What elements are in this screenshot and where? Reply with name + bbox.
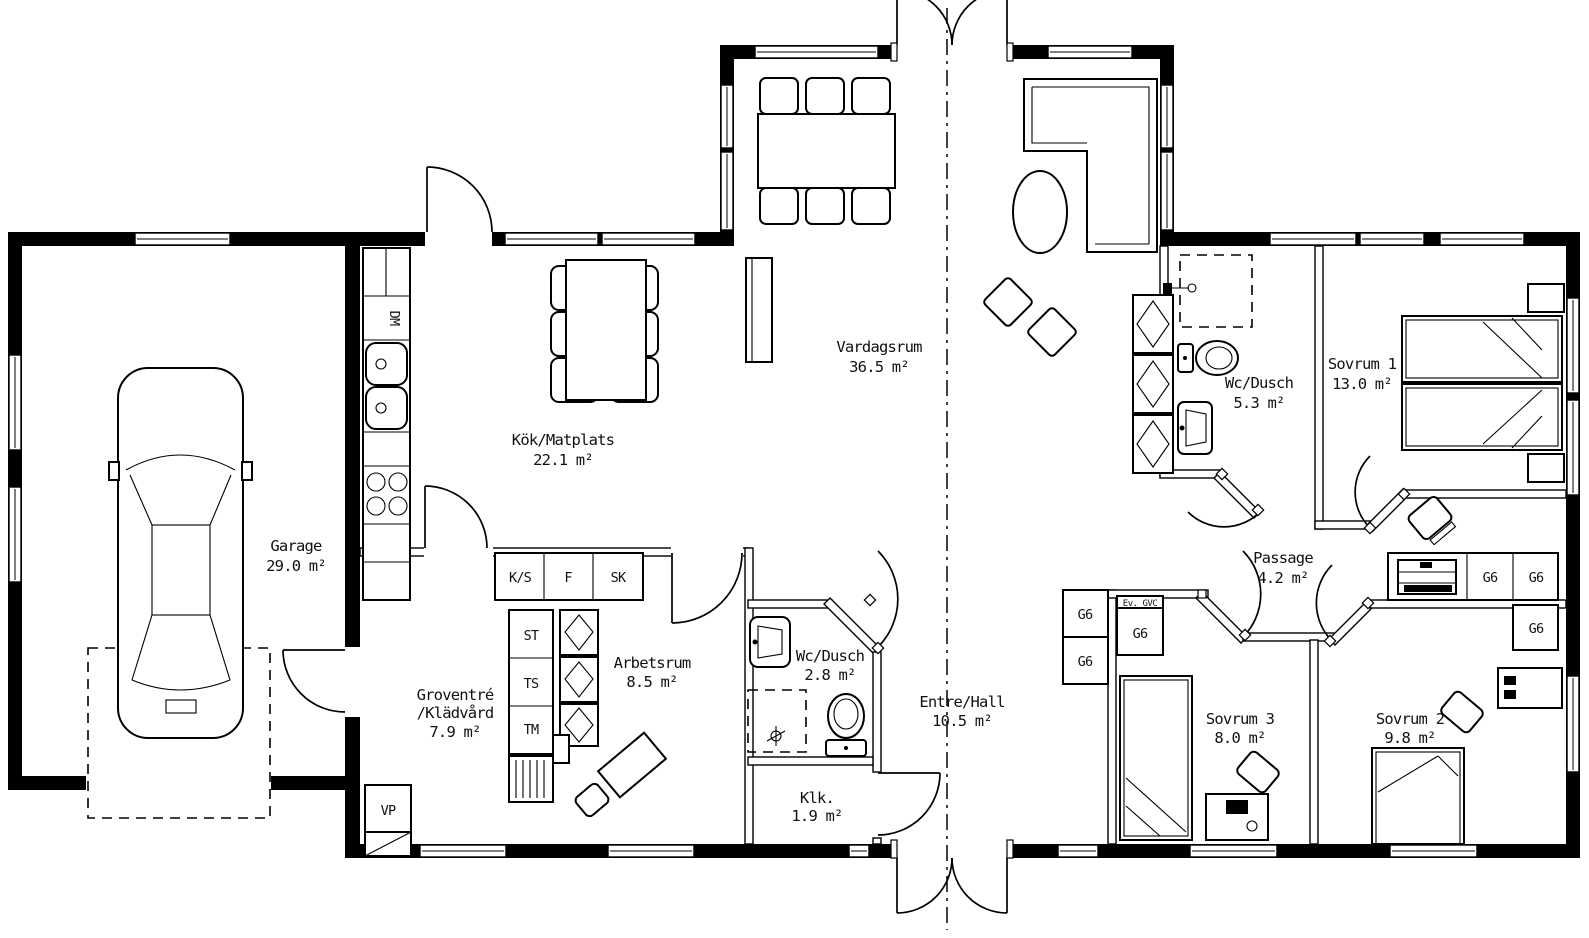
window	[420, 845, 506, 857]
garage-area: 29.0 m²	[266, 557, 326, 575]
bathroom-2	[748, 617, 866, 756]
room-label-sovrum1: Sovrum 113.0 m²	[1328, 355, 1397, 393]
window	[602, 233, 695, 245]
room-label-groventre: Groventré/Klädvård7.9 m²	[417, 686, 494, 741]
window	[1390, 845, 1477, 857]
room-label-wc-dusch-1: Wc/Dusch5.3 m²	[1225, 374, 1293, 412]
door-wc-dusch-1	[1188, 512, 1260, 527]
bed	[1120, 676, 1192, 840]
sovrum2-area: 9.8 m²	[1384, 729, 1435, 747]
room-label-entre-hall: Entre/Hall10.5 m²	[919, 693, 1004, 730]
furniture	[109, 78, 1564, 856]
bathroom-1	[1163, 255, 1252, 454]
sovrum1-area: 13.0 m²	[1332, 375, 1392, 393]
window	[1360, 233, 1424, 245]
entre-name: Entre/Hall	[919, 693, 1004, 711]
sink-icon	[750, 617, 790, 667]
bed	[1372, 748, 1464, 844]
st-label: ST	[524, 628, 539, 644]
door-wc-hall	[878, 551, 898, 647]
bed	[1402, 316, 1562, 382]
door-sovrum2	[1316, 565, 1332, 641]
shower-icon	[748, 690, 806, 752]
room-label-sovrum2: Sovrum 29.8 m²	[1376, 710, 1445, 747]
g6-label: G6	[1133, 626, 1148, 642]
arbetsrum-furniture	[553, 610, 666, 818]
armchair	[1027, 307, 1078, 358]
wardrobe-shelves	[1133, 295, 1173, 473]
sk-label: SK	[611, 570, 627, 586]
window	[1567, 298, 1579, 393]
chair	[1439, 690, 1485, 735]
window	[721, 85, 733, 148]
window	[1440, 233, 1524, 245]
room-label-kok: Kök/Matplats22.1 m²	[512, 431, 614, 469]
arbetsrum-name: Arbetsrum	[614, 654, 691, 672]
sovrum2-furniture	[1372, 668, 1562, 844]
sovrum3-furniture	[1120, 676, 1281, 840]
dining-table	[758, 114, 895, 188]
vardagsrum-area: 36.5 m²	[849, 358, 909, 376]
chair	[574, 782, 611, 818]
dresser-icon	[1398, 560, 1456, 594]
vp-unit	[365, 785, 411, 856]
kok-area: 22.1 m²	[533, 451, 593, 469]
armchair	[983, 277, 1034, 328]
window	[1058, 845, 1098, 857]
g6-label: G6	[1529, 621, 1544, 637]
garage-name: Garage	[270, 537, 322, 555]
room-label-garage: Garage29.0 m²	[266, 537, 326, 575]
tm-label: TM	[524, 722, 539, 738]
kitchen-counter	[363, 248, 410, 600]
wc1-name: Wc/Dusch	[1225, 374, 1293, 392]
cabinet	[553, 735, 569, 763]
wc2-area: 2.8 m²	[804, 666, 855, 684]
desk	[1498, 668, 1562, 708]
window	[755, 46, 878, 58]
coffee-table	[1013, 171, 1067, 253]
door-kitchen-north	[427, 167, 492, 232]
sovrum3-name: Sovrum 3	[1206, 710, 1275, 728]
g6-label: G6	[1529, 570, 1544, 586]
window	[849, 845, 869, 857]
window	[505, 233, 598, 245]
window	[1567, 676, 1579, 772]
g6-label: G6	[1078, 607, 1093, 623]
window	[9, 487, 21, 582]
dining-set	[758, 78, 895, 224]
chair	[1407, 495, 1459, 547]
room-label-arbetsrum: Arbetsrum8.5 m²	[614, 654, 691, 691]
radiator-icon	[509, 756, 553, 802]
door-klk	[878, 773, 940, 835]
vardagsrum-name: Vardagsrum	[836, 338, 922, 356]
sovrum3-area: 8.0 m²	[1214, 729, 1265, 747]
room-label-klk: Klk.1.9 m²	[791, 789, 842, 825]
window	[9, 355, 21, 450]
sovrum1-furniture	[1402, 284, 1564, 547]
nightstand	[1206, 794, 1268, 840]
window	[608, 845, 694, 857]
groventre-name2: /Klädvård	[417, 704, 494, 722]
kok-name: Kök/Matplats	[512, 431, 614, 449]
entre-area: 10.5 m²	[932, 712, 992, 730]
dm-label: DM	[386, 311, 402, 326]
g6-label: G6	[1483, 570, 1498, 586]
door-sovrum1	[1355, 456, 1370, 528]
kitchen-table	[566, 260, 646, 400]
door-groventre	[425, 486, 487, 548]
groventre-name1: Groventré	[417, 686, 494, 704]
sideboard	[746, 258, 772, 362]
nightstand	[1528, 454, 1564, 482]
bed	[1402, 384, 1562, 450]
window	[1161, 85, 1173, 148]
car	[109, 368, 252, 738]
toilet-icon	[1178, 341, 1238, 375]
toilet-icon	[826, 694, 866, 756]
door-garage	[283, 650, 345, 712]
window	[1270, 233, 1356, 245]
shower-icon	[1180, 255, 1252, 327]
desk	[598, 733, 666, 798]
window	[721, 152, 733, 230]
window	[135, 233, 230, 245]
kitchen-dining-set	[551, 260, 658, 402]
window	[1190, 845, 1277, 857]
f-label: F	[564, 570, 572, 586]
ev-gvc-label: Ev. GVC	[1123, 599, 1158, 609]
window	[1161, 152, 1173, 230]
passage-area: 4.2 m²	[1257, 569, 1308, 587]
door-arbetsrum	[672, 553, 742, 623]
window	[1048, 46, 1132, 58]
floorplan-drawing: Garage29.0 m² Kök/Matplats22.1 m² Vardag…	[0, 0, 1589, 938]
window	[1567, 400, 1579, 495]
sovrum1-name: Sovrum 1	[1328, 355, 1397, 373]
klk-name: Klk.	[800, 789, 834, 807]
g6-label: G6	[1078, 654, 1093, 670]
sovrum2-name: Sovrum 2	[1376, 710, 1445, 728]
klk-area: 1.9 m²	[791, 807, 842, 825]
room-label-passage: Passage4.2 m²	[1253, 549, 1313, 587]
sink-icon	[1178, 402, 1212, 454]
room-label-sovrum3: Sovrum 38.0 m²	[1206, 710, 1275, 747]
groventre-area: 7.9 m²	[429, 723, 480, 741]
chair	[1235, 750, 1281, 795]
nightstand	[1528, 284, 1564, 312]
passage-name: Passage	[1253, 549, 1313, 567]
vp-label: VP	[381, 803, 396, 819]
floorplan-canvas: Garage29.0 m² Kök/Matplats22.1 m² Vardag…	[0, 0, 1589, 938]
ks-label: K/S	[509, 570, 532, 586]
room-label-vardagsrum: Vardagsrum36.5 m²	[836, 338, 922, 376]
wc2-name: Wc/Dusch	[796, 647, 864, 665]
room-label-wc-dusch-2: Wc/Dusch2.8 m²	[796, 647, 864, 684]
arbetsrum-area: 8.5 m²	[626, 673, 677, 691]
ts-label: TS	[524, 676, 539, 692]
wc1-area: 5.3 m²	[1233, 394, 1284, 412]
